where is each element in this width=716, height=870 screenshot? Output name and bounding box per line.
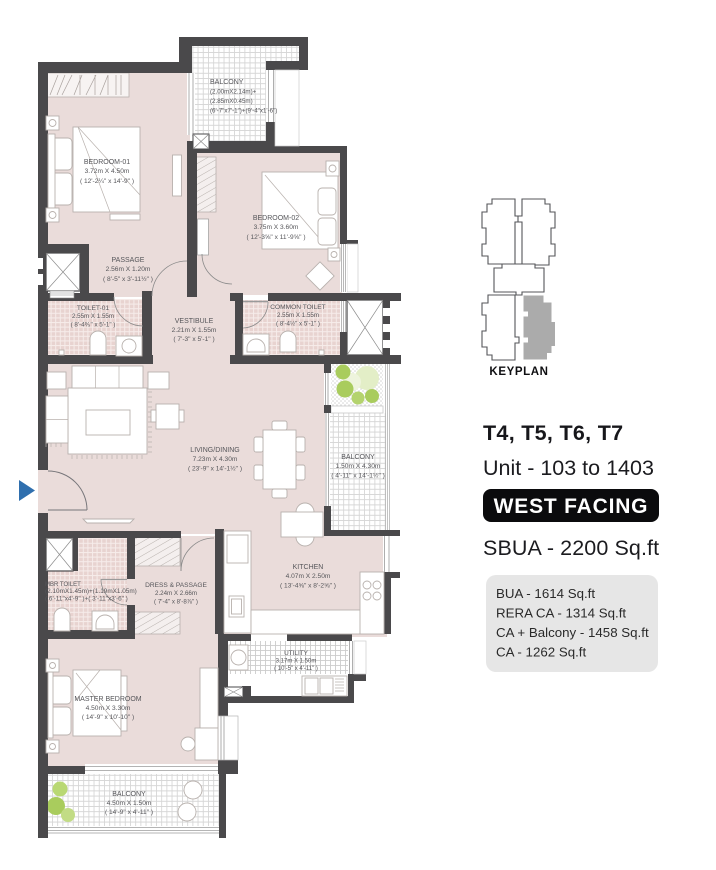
svg-text:2.24m X 2.66m: 2.24m X 2.66m [155, 590, 197, 597]
svg-text:CA + Balcony - 1458 Sq.ft: CA + Balcony - 1458 Sq.ft [496, 625, 649, 640]
svg-text:UTILITY: UTILITY [284, 650, 309, 657]
svg-text:4.50m X 3.30m: 4.50m X 3.30m [86, 705, 131, 712]
svg-text:Unit - 103 to 1403: Unit - 103 to 1403 [483, 456, 654, 480]
svg-text:BUA - 1614 Sq.ft: BUA - 1614 Sq.ft [496, 586, 595, 601]
svg-text:CA - 1262 Sq.ft: CA - 1262 Sq.ft [496, 645, 586, 660]
svg-text:COMMON TOILET: COMMON TOILET [270, 304, 325, 311]
svg-text:( 7'-4" x 8'-8⅞" ): ( 7'-4" x 8'-8⅞" ) [154, 599, 198, 606]
svg-text:(2.00mX2.14m)+: (2.00mX2.14m)+ [210, 89, 257, 96]
svg-text:( 12'-2¼" x 14'-9" ): ( 12'-2¼" x 14'-9" ) [80, 178, 134, 185]
svg-text:3.75m X 3.60m: 3.75m X 3.60m [254, 224, 299, 231]
svg-text:( 7'-3" x 5'-1" ): ( 7'-3" x 5'-1" ) [173, 336, 214, 343]
svg-text:BALCONY: BALCONY [210, 79, 244, 86]
svg-text:( 13'-4⅝" x 8'-2⅝" ): ( 13'-4⅝" x 8'-2⅝" ) [280, 583, 336, 590]
svg-text:( 6'-11"x4'-9" )+( 3'-11"x3'-6: ( 6'-11"x4'-9" )+( 3'-11"x3'-6" ) [45, 596, 128, 603]
svg-text:(6'-7"x7'-1")+(9'-4"x1'-6"): (6'-7"x7'-1")+(9'-4"x1'-6") [210, 108, 277, 115]
svg-text:( 8'-5" x 3'-11½" ): ( 8'-5" x 3'-11½" ) [103, 275, 153, 283]
svg-text:BALCONY: BALCONY [112, 791, 146, 798]
svg-text:7.23m X 4.30m: 7.23m X 4.30m [193, 456, 238, 463]
svg-text:VESTIBULE: VESTIBULE [175, 318, 214, 325]
svg-text:( 12'-3⅝" x 11'-9⅝" ): ( 12'-3⅝" x 11'-9⅝" ) [246, 234, 305, 241]
svg-text:RERA CA - 1314 Sq.ft: RERA CA - 1314 Sq.ft [496, 606, 626, 621]
svg-text:(2.10mX1.45m)+(1.19mX1.05m): (2.10mX1.45m)+(1.19mX1.05m) [45, 588, 137, 595]
svg-text:1.50m X 4.30m: 1.50m X 4.30m [336, 463, 381, 470]
svg-text:2.21m X 1.55m: 2.21m X 1.55m [172, 327, 217, 334]
svg-text:4.07m X 2.50m: 4.07m X 2.50m [286, 573, 331, 580]
svg-text:WEST FACING: WEST FACING [494, 495, 649, 518]
svg-text:2.55m X 1.55m: 2.55m X 1.55m [277, 312, 319, 319]
svg-text:4.50m X 1.50m: 4.50m X 1.50m [107, 800, 152, 807]
svg-text:( 8'-4½" x 5'-1" ): ( 8'-4½" x 5'-1" ) [276, 321, 320, 328]
svg-text:T4, T5, T6, T7: T4, T5, T6, T7 [483, 421, 623, 445]
svg-text:SBUA - 2200 Sq.ft: SBUA - 2200 Sq.ft [483, 536, 659, 560]
svg-text:( 14'-9" x 4'-11" ): ( 14'-9" x 4'-11" ) [105, 809, 153, 816]
svg-text:MASTER BEDROOM: MASTER BEDROOM [74, 696, 141, 703]
svg-text:KEYPLAN: KEYPLAN [489, 366, 548, 378]
svg-text:TOILET-01: TOILET-01 [77, 305, 109, 312]
svg-text:PASSAGE: PASSAGE [112, 257, 145, 264]
svg-text:BEDROOM-02: BEDROOM-02 [253, 215, 299, 222]
svg-text:3.72m X 4.50m: 3.72m X 4.50m [85, 168, 130, 175]
svg-text:2.56m X 1.20m: 2.56m X 1.20m [106, 266, 151, 273]
svg-text:BALCONY: BALCONY [341, 454, 375, 461]
svg-text:( 4'-11" x 14'-1½" ): ( 4'-11" x 14'-1½" ) [331, 472, 385, 480]
svg-text:LIVING/DINING: LIVING/DINING [190, 447, 239, 454]
svg-text:DRESS & PASSAGE: DRESS & PASSAGE [145, 582, 207, 589]
svg-text:3.17m X 1.50m: 3.17m X 1.50m [276, 659, 317, 665]
svg-text:(2.85mX0.45m): (2.85mX0.45m) [210, 98, 253, 105]
svg-text:KITCHEN: KITCHEN [293, 564, 324, 571]
svg-text:( 14'-9" x 10'-10" ): ( 14'-9" x 10'-10" ) [82, 714, 134, 721]
svg-text:( 23'-9" x 14'-1½" ): ( 23'-9" x 14'-1½" ) [188, 465, 242, 473]
svg-text:2.55m X 1.55m: 2.55m X 1.55m [72, 313, 114, 320]
svg-text:( 10'-5" x 4'-11" ): ( 10'-5" x 4'-11" ) [274, 666, 318, 672]
svg-text:BEDROOM-01: BEDROOM-01 [84, 159, 130, 166]
svg-text:( 8'-4⅗" x 5'-1" ): ( 8'-4⅗" x 5'-1" ) [71, 322, 116, 329]
